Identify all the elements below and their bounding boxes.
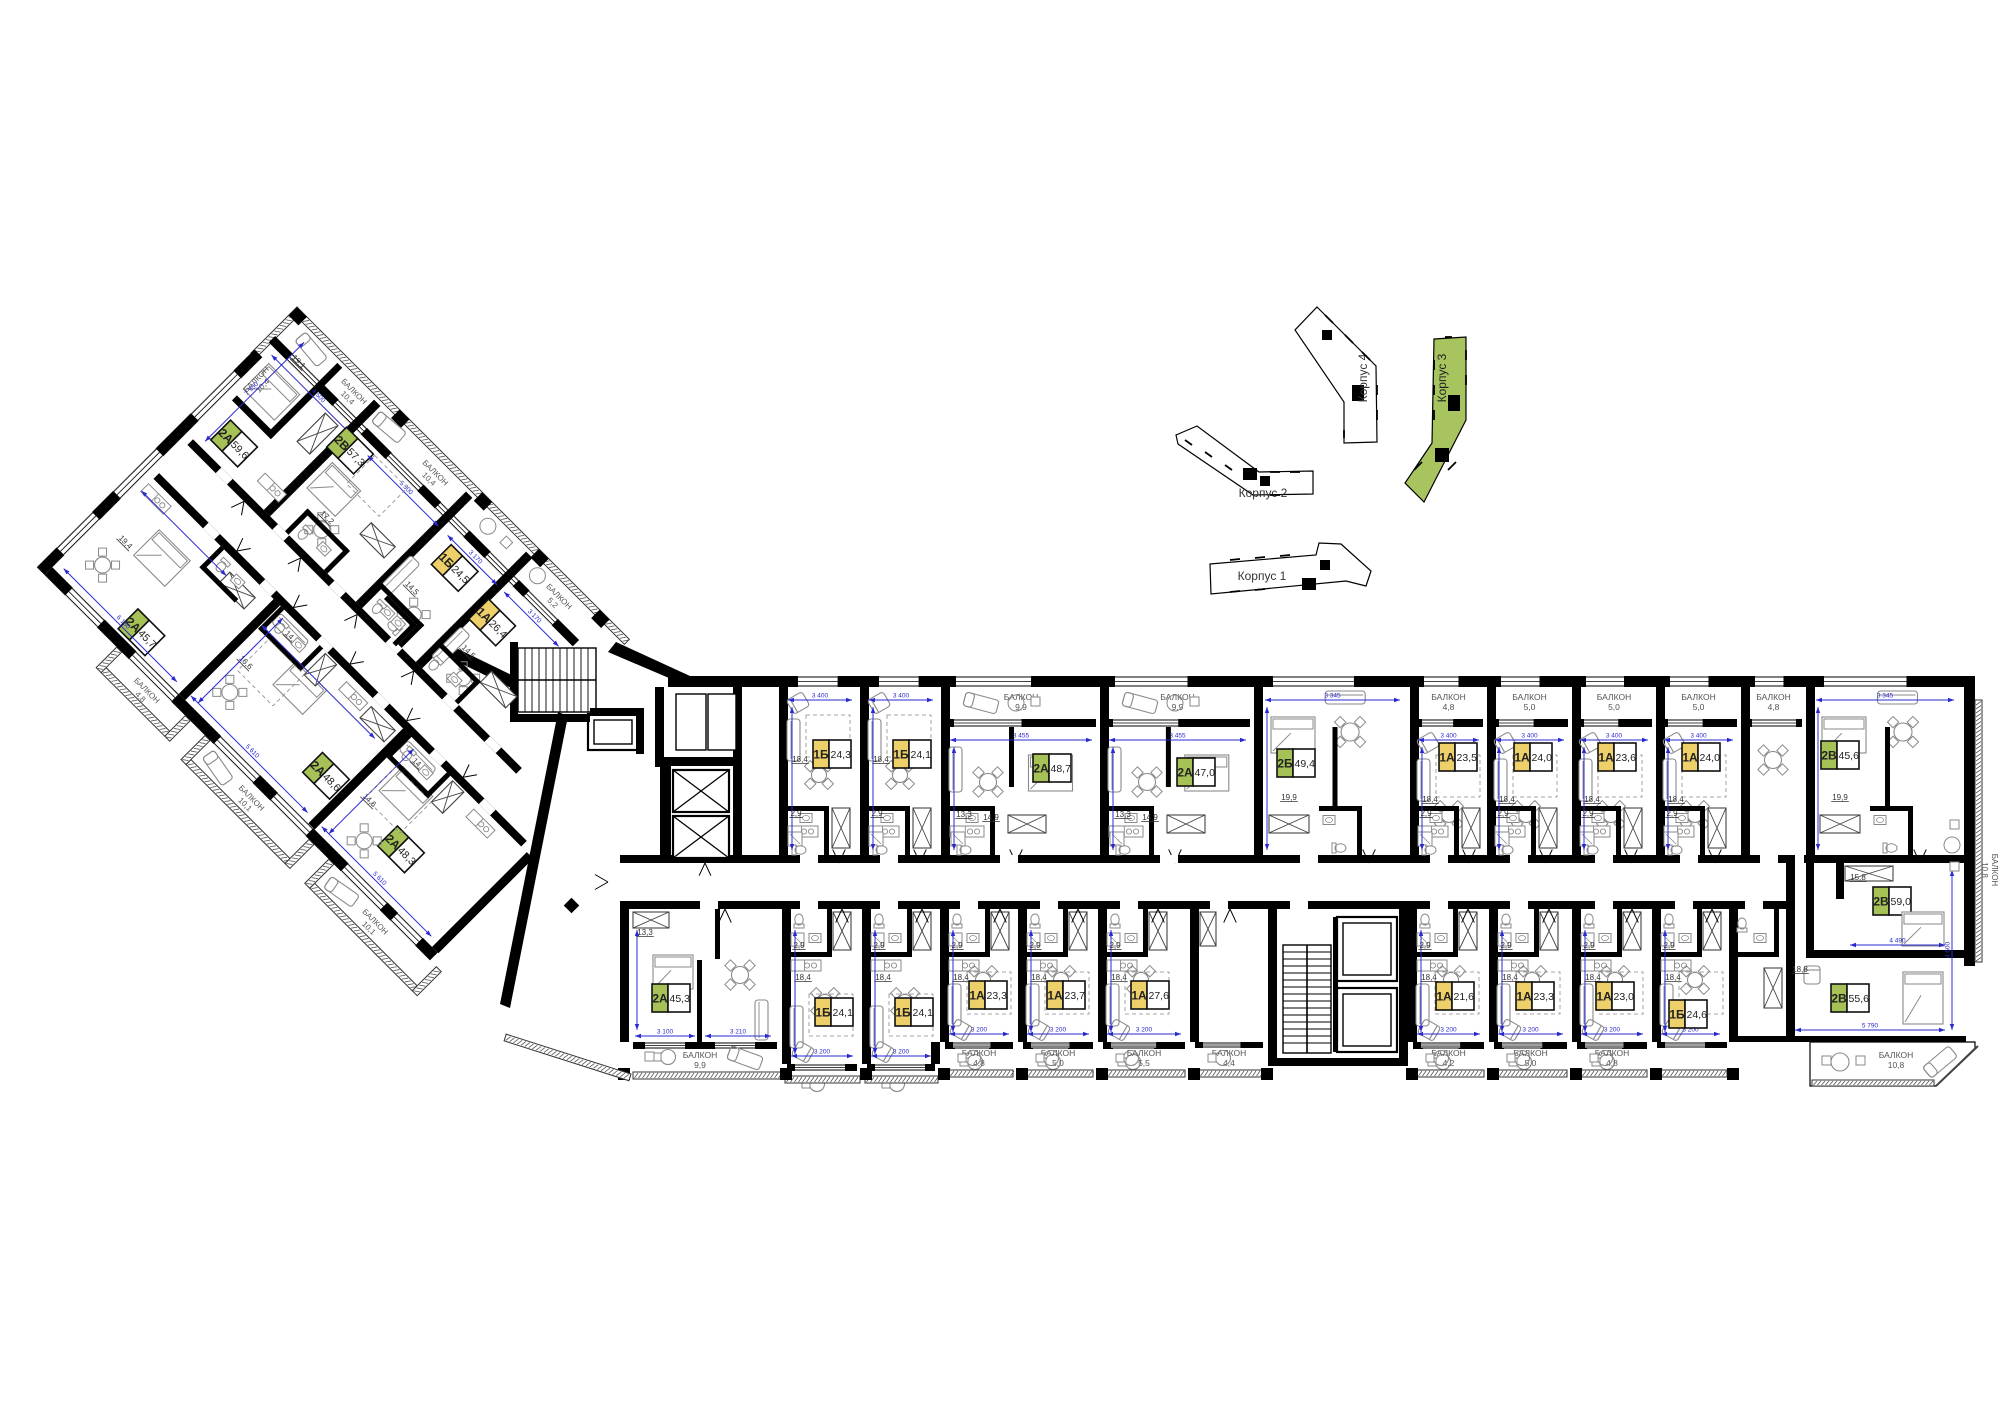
svg-text:24,1: 24,1 xyxy=(833,1007,854,1019)
svg-text:1А: 1А xyxy=(1131,989,1147,1003)
svg-text:59,0: 59,0 xyxy=(1891,896,1912,908)
svg-text:23,5: 23,5 xyxy=(1457,752,1478,764)
svg-text:2,9: 2,9 xyxy=(1420,809,1432,818)
svg-text:5,0: 5,0 xyxy=(1608,702,1620,712)
svg-text:2,9: 2,9 xyxy=(1029,941,1041,950)
svg-text:23,7: 23,7 xyxy=(1065,990,1086,1002)
svg-text:1А: 1А xyxy=(1047,989,1063,1003)
svg-text:13,3: 13,3 xyxy=(956,810,972,819)
svg-text:2,9: 2,9 xyxy=(1666,809,1678,818)
svg-text:18,4: 18,4 xyxy=(1499,795,1515,804)
svg-text:2,9: 2,9 xyxy=(1582,809,1594,818)
svg-text:Корпус 1: Корпус 1 xyxy=(1238,569,1287,583)
svg-text:БАЛКОН: БАЛКОН xyxy=(1513,1048,1547,1058)
svg-text:5,0: 5,0 xyxy=(1693,702,1705,712)
svg-text:18,4: 18,4 xyxy=(1422,795,1438,804)
svg-text:24,1: 24,1 xyxy=(913,1007,934,1019)
svg-text:21,6: 21,6 xyxy=(1454,991,1475,1003)
svg-text:1Б: 1Б xyxy=(1669,1008,1685,1022)
svg-text:1А: 1А xyxy=(1514,751,1530,765)
svg-text:24,0: 24,0 xyxy=(1532,752,1553,764)
svg-text:3 400: 3 400 xyxy=(812,693,829,700)
svg-text:24,1: 24,1 xyxy=(911,749,932,761)
svg-text:23,6: 23,6 xyxy=(1616,752,1637,764)
svg-text:13,3: 13,3 xyxy=(637,928,653,937)
svg-text:49,4: 49,4 xyxy=(1295,758,1316,770)
svg-text:3 200: 3 200 xyxy=(971,1027,988,1034)
svg-text:БАЛКОН: БАЛКОН xyxy=(1681,692,1715,702)
svg-text:24,3: 24,3 xyxy=(831,749,852,761)
svg-text:3 100: 3 100 xyxy=(657,1029,674,1036)
svg-text:5 790: 5 790 xyxy=(1862,1023,1879,1030)
svg-text:БАЛКОН: БАЛКОН xyxy=(1879,1050,1913,1060)
svg-text:2В: 2В xyxy=(1821,749,1837,763)
svg-text:1А: 1А xyxy=(1436,990,1452,1004)
svg-text:18,4: 18,4 xyxy=(792,755,808,764)
svg-text:10,8: 10,8 xyxy=(1888,1060,1905,1070)
svg-text:2,9: 2,9 xyxy=(1109,941,1121,950)
svg-text:47,0: 47,0 xyxy=(1195,767,1216,779)
svg-text:4 490: 4 490 xyxy=(1889,938,1906,945)
svg-text:1А: 1А xyxy=(1682,751,1698,765)
svg-text:2В: 2В xyxy=(1873,895,1889,909)
svg-text:24,6: 24,6 xyxy=(1687,1009,1708,1021)
svg-text:19,9: 19,9 xyxy=(1281,793,1297,802)
svg-text:3 210: 3 210 xyxy=(730,1029,747,1036)
svg-text:БАЛКОН: БАЛКОН xyxy=(1512,692,1546,702)
svg-text:2,9: 2,9 xyxy=(1663,941,1675,950)
svg-text:18,4: 18,4 xyxy=(1668,795,1684,804)
svg-text:3 400: 3 400 xyxy=(893,693,910,700)
svg-text:2,9: 2,9 xyxy=(1500,941,1512,950)
svg-text:3 455: 3 455 xyxy=(1013,733,1030,740)
svg-text:БАЛКОН: БАЛКОН xyxy=(1597,692,1631,702)
svg-text:1А: 1А xyxy=(1598,751,1614,765)
svg-text:3 345: 3 345 xyxy=(1877,693,1894,700)
svg-text:2,9: 2,9 xyxy=(871,809,883,818)
svg-text:19,9: 19,9 xyxy=(1832,793,1848,802)
svg-text:27,6: 27,6 xyxy=(1149,990,1170,1002)
svg-text:1Б: 1Б xyxy=(895,1006,911,1020)
svg-text:2А: 2А xyxy=(1033,762,1049,776)
svg-text:1А: 1А xyxy=(1596,990,1612,1004)
svg-text:4,8: 4,8 xyxy=(1443,702,1455,712)
svg-text:1Б: 1Б xyxy=(813,748,829,762)
svg-text:3 455: 3 455 xyxy=(1169,733,1186,740)
svg-text:45,3: 45,3 xyxy=(670,993,691,1005)
svg-text:3 200: 3 200 xyxy=(1440,1027,1457,1034)
svg-text:23,3: 23,3 xyxy=(1534,991,1555,1003)
svg-text:БАЛКОН: БАЛКОН xyxy=(1431,692,1465,702)
svg-text:1Б: 1Б xyxy=(893,748,909,762)
svg-text:5,0: 5,0 xyxy=(1525,1058,1537,1068)
svg-text:18,4: 18,4 xyxy=(1584,795,1600,804)
svg-text:3 400: 3 400 xyxy=(1440,733,1457,740)
svg-text:3 200: 3 200 xyxy=(1136,1027,1153,1034)
svg-text:23,3: 23,3 xyxy=(987,990,1008,1002)
svg-text:БАЛКОН: БАЛКОН xyxy=(1756,692,1790,702)
svg-text:48,7: 48,7 xyxy=(1051,763,1072,775)
svg-text:23,0: 23,0 xyxy=(1614,991,1635,1003)
svg-text:14,9: 14,9 xyxy=(983,813,999,822)
svg-text:1А: 1А xyxy=(969,989,985,1003)
svg-text:3 400: 3 400 xyxy=(1690,733,1707,740)
svg-text:3 200: 3 200 xyxy=(1050,1027,1067,1034)
svg-text:2,9: 2,9 xyxy=(1419,941,1431,950)
svg-text:13,3: 13,3 xyxy=(1115,810,1131,819)
svg-text:15,8: 15,8 xyxy=(1850,873,1866,882)
svg-text:14,9: 14,9 xyxy=(1142,813,1158,822)
svg-text:1А: 1А xyxy=(1516,990,1532,1004)
svg-text:1Б: 1Б xyxy=(815,1006,831,1020)
svg-text:18,8: 18,8 xyxy=(1792,965,1808,974)
svg-text:Корпус 3: Корпус 3 xyxy=(1435,353,1449,402)
svg-text:3 345: 3 345 xyxy=(1324,693,1341,700)
svg-text:2,9: 2,9 xyxy=(1497,809,1509,818)
svg-text:24,0: 24,0 xyxy=(1700,752,1721,764)
svg-text:2,9: 2,9 xyxy=(790,809,802,818)
svg-text:18,4: 18,4 xyxy=(873,755,889,764)
svg-text:Корпус 2: Корпус 2 xyxy=(1239,486,1288,500)
svg-text:45,6: 45,6 xyxy=(1839,750,1860,762)
svg-text:БАЛКОН: БАЛКОН xyxy=(683,1050,717,1060)
svg-text:2А: 2А xyxy=(1177,766,1193,780)
svg-text:2,9: 2,9 xyxy=(793,941,805,950)
svg-text:18,4: 18,4 xyxy=(795,973,811,982)
svg-text:9,9: 9,9 xyxy=(694,1060,706,1070)
svg-text:2,9: 2,9 xyxy=(951,941,963,950)
svg-text:2,9: 2,9 xyxy=(1583,941,1595,950)
svg-text:БАЛКОН: БАЛКОН xyxy=(1127,1048,1161,1058)
svg-text:5,0: 5,0 xyxy=(1524,702,1536,712)
svg-text:3 200: 3 200 xyxy=(814,1049,831,1056)
svg-text:3 200: 3 200 xyxy=(1604,1027,1621,1034)
svg-text:2А: 2А xyxy=(652,992,668,1006)
svg-text:3 400: 3 400 xyxy=(1521,733,1538,740)
svg-text:3 200: 3 200 xyxy=(1522,1027,1539,1034)
svg-text:10,8: 10,8 xyxy=(1980,862,1989,878)
svg-text:5,5: 5,5 xyxy=(1138,1058,1150,1068)
svg-text:4,8: 4,8 xyxy=(1768,702,1780,712)
svg-text:55,6: 55,6 xyxy=(1849,993,1870,1005)
svg-text:2В: 2В xyxy=(1831,992,1847,1006)
svg-text:4 600: 4 600 xyxy=(1945,941,1952,958)
svg-text:18,4: 18,4 xyxy=(875,973,891,982)
svg-text:2Б: 2Б xyxy=(1277,757,1293,771)
svg-text:3 200: 3 200 xyxy=(893,1049,910,1056)
svg-text:2,9: 2,9 xyxy=(873,941,885,950)
svg-text:1А: 1А xyxy=(1439,751,1455,765)
svg-text:Корпус 4: Корпус 4 xyxy=(1356,353,1370,402)
svg-text:БАЛКОН: БАЛКОН xyxy=(1990,854,1999,887)
svg-text:3 400: 3 400 xyxy=(1606,733,1623,740)
